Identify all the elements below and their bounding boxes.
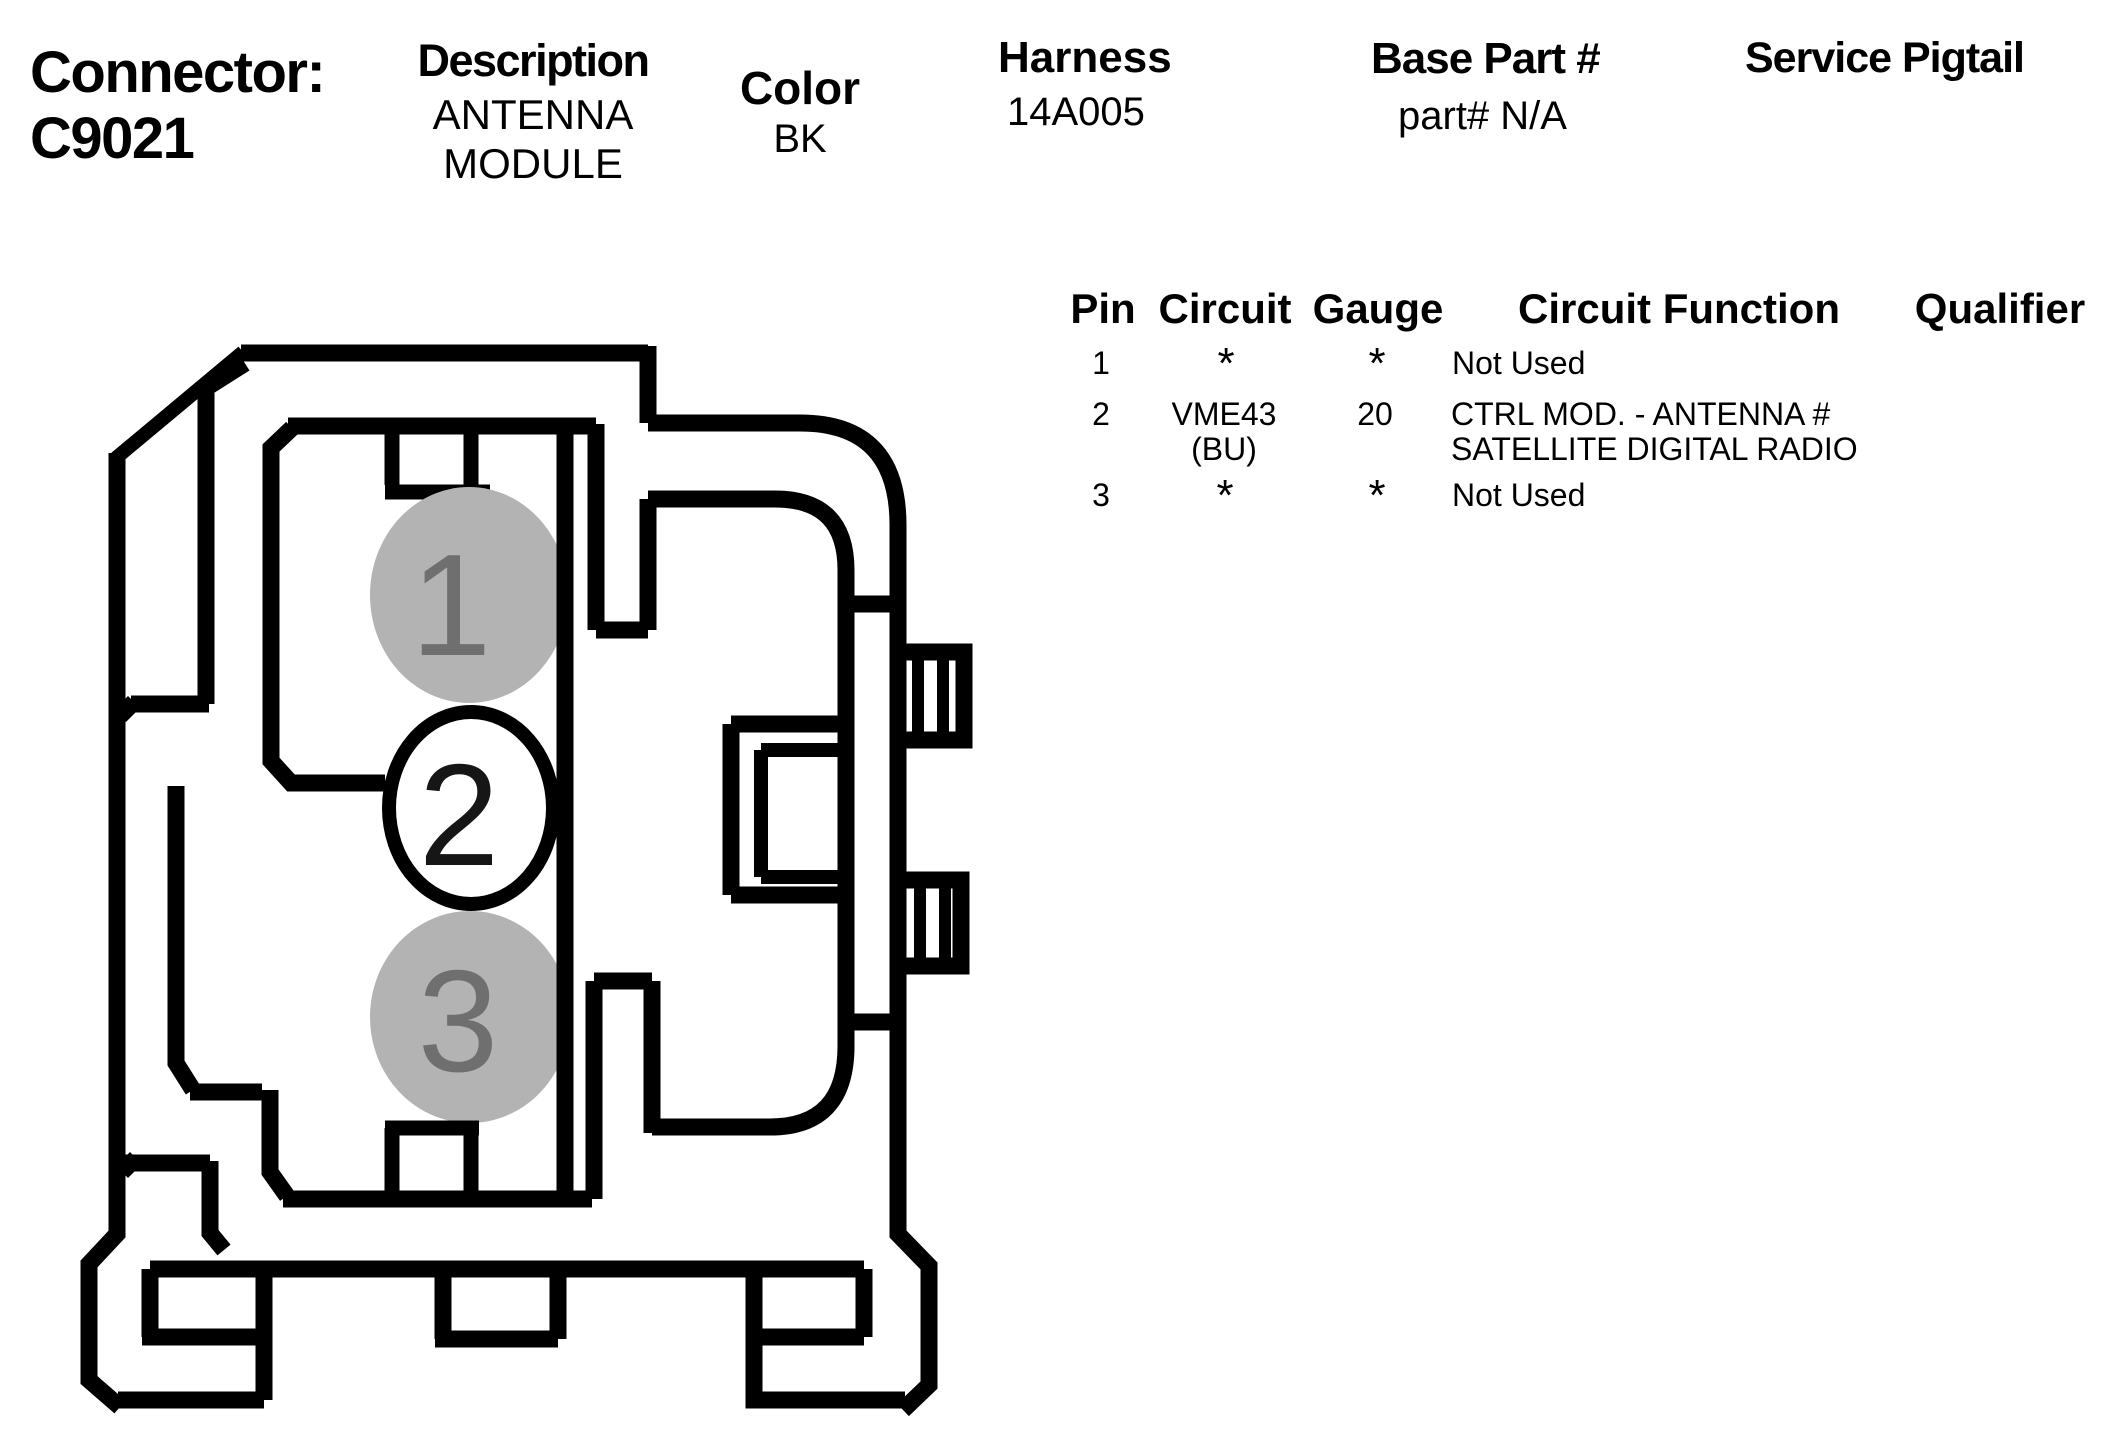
svg-text:1: 1 — [411, 524, 492, 686]
svg-text:3: 3 — [418, 940, 499, 1102]
svg-text:2: 2 — [419, 734, 500, 896]
